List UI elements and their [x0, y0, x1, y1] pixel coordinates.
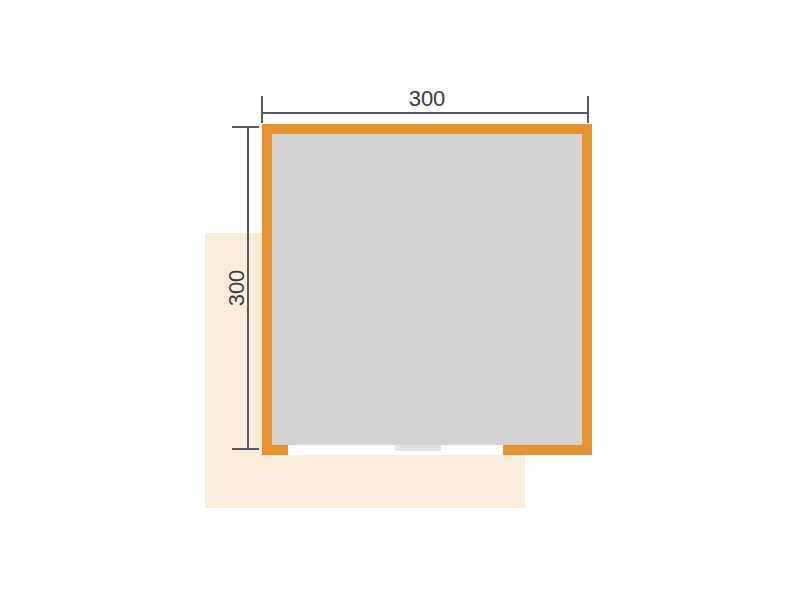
floor-plan-canvas: 300 300: [0, 0, 800, 600]
height-dimension-tick-bottom: [232, 448, 259, 450]
height-dimension-label: 300: [225, 256, 249, 320]
width-dimension-label: 300: [395, 87, 459, 111]
height-dimension-tick-top: [232, 126, 259, 128]
width-dimension-line: [262, 112, 589, 114]
width-dimension-tick-right: [587, 96, 589, 123]
door-threshold: [395, 445, 441, 451]
cabin-outline: [262, 124, 592, 455]
width-dimension-tick-left: [261, 96, 263, 123]
